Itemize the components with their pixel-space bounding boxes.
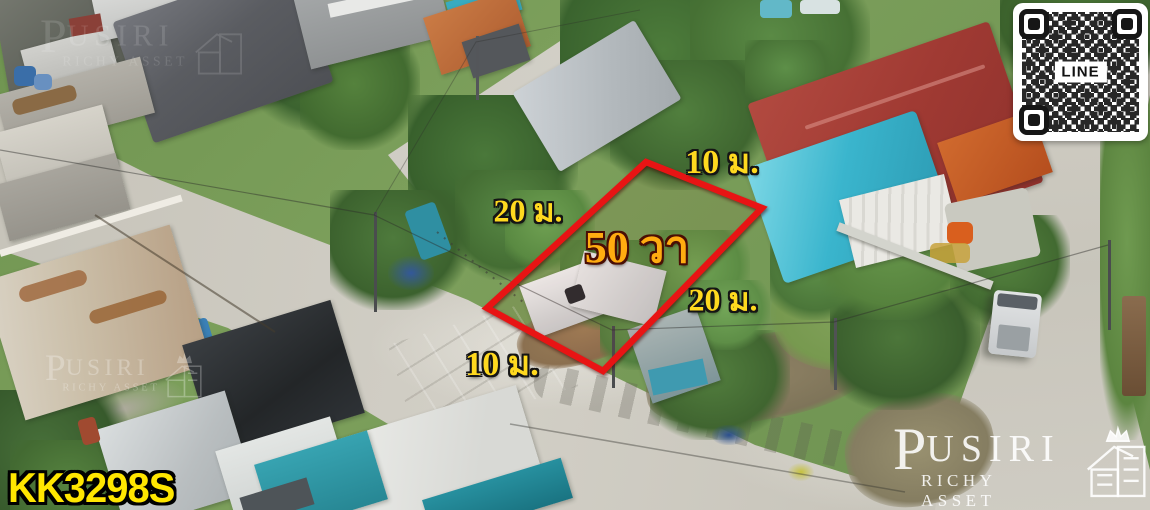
pole-sign <box>1122 296 1146 396</box>
brand-text: P USIRI RICHY ASSET <box>45 352 160 394</box>
brand-text: P USIRI RICHY ASSET <box>40 16 188 70</box>
brand-initial: P <box>40 16 67 57</box>
brand-rest: USIRI <box>66 352 149 380</box>
brand-rest: USIRI <box>67 16 174 53</box>
aerial-photo: 10 ม. 20 ม. 50 วา 20 ม. 10 ม. KK3298S LI… <box>0 0 1150 510</box>
label-left-depth: 20 ม. <box>493 186 562 237</box>
blue-bins <box>14 66 36 86</box>
brand-watermark-faint-left: P USIRI RICHY ASSET <box>45 352 204 399</box>
brand-house-icon <box>163 352 204 399</box>
brand-house-icon <box>1084 424 1150 500</box>
brand-subtitle: RICHY ASSET <box>62 381 159 393</box>
roadside-barrels <box>712 425 746 445</box>
truck-cargo-door <box>996 324 1030 351</box>
brand-watermark-faint-top: P USIRI RICHY ASSET <box>40 16 246 77</box>
label-bottom-width: 10 ม. <box>465 336 538 390</box>
brand-watermark-main: P USIRI RICHY ASSET <box>893 424 1150 510</box>
label-area: 50 วา <box>585 212 689 282</box>
utility-pole <box>1108 240 1111 330</box>
utility-pole <box>834 318 837 390</box>
orange-object <box>947 222 973 244</box>
brand-house-icon <box>193 16 246 77</box>
truck-cab <box>997 293 1038 310</box>
potted-plants-blue <box>388 256 434 290</box>
label-right-depth: 20 ม. <box>688 275 757 326</box>
utility-pole <box>476 36 479 100</box>
qr-code-card: LINE <box>1013 3 1148 141</box>
brand-initial: P <box>45 352 66 384</box>
listing-code: KK3298S <box>8 464 174 510</box>
truck <box>988 290 1042 359</box>
pool-teal-bit <box>760 0 792 18</box>
brand-initial: P <box>893 424 926 475</box>
brand-subtitle: RICHY ASSET <box>921 471 1078 510</box>
brand-rest: USIRI <box>926 424 1060 470</box>
utility-pole <box>612 326 615 388</box>
tent-white-bit <box>800 0 840 14</box>
brand-text: P USIRI RICHY ASSET <box>893 424 1078 510</box>
qr-finder-icon <box>1112 9 1142 39</box>
qr-finder-icon <box>1019 105 1049 135</box>
qr-finder-icon <box>1019 9 1049 39</box>
line-app-label: LINE <box>1054 62 1106 83</box>
brand-subtitle: RICHY ASSET <box>62 54 188 70</box>
utility-pole <box>374 212 377 312</box>
label-top-width: 10 ม. <box>685 134 758 188</box>
yellow-flowers <box>788 463 814 481</box>
